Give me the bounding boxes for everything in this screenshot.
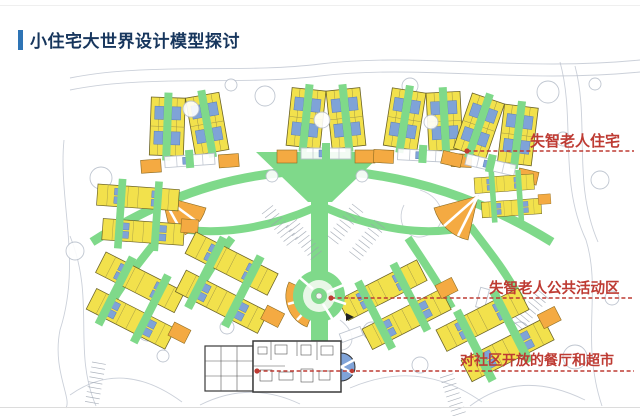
annotation-dining-label: 对社区开放的餐厅和超市 [460,352,614,368]
community-building [205,332,355,392]
annotation-anchor-dot [350,369,354,373]
public-activity-circle [286,270,346,327]
presentation-slide: 小住宅大世界设计模型探讨 [0,0,640,416]
annotation-activity-label: 失智老人公共活动区 [489,279,620,297]
annotation-anchor-dot [328,295,333,300]
slide-bottom-border [0,407,640,408]
housing-cluster-top-1 [136,86,239,173]
housing-cluster-right-1 [474,168,552,224]
annotation-anchor-dot [464,148,469,153]
annotation-anchor-dot [254,368,259,373]
annotation-housing-label: 失智老人住宅 [530,132,620,150]
site-plan-drawing: 失智老人住宅 失智老人公共活动区 对社区开放的餐厅和超市 [0,0,640,416]
